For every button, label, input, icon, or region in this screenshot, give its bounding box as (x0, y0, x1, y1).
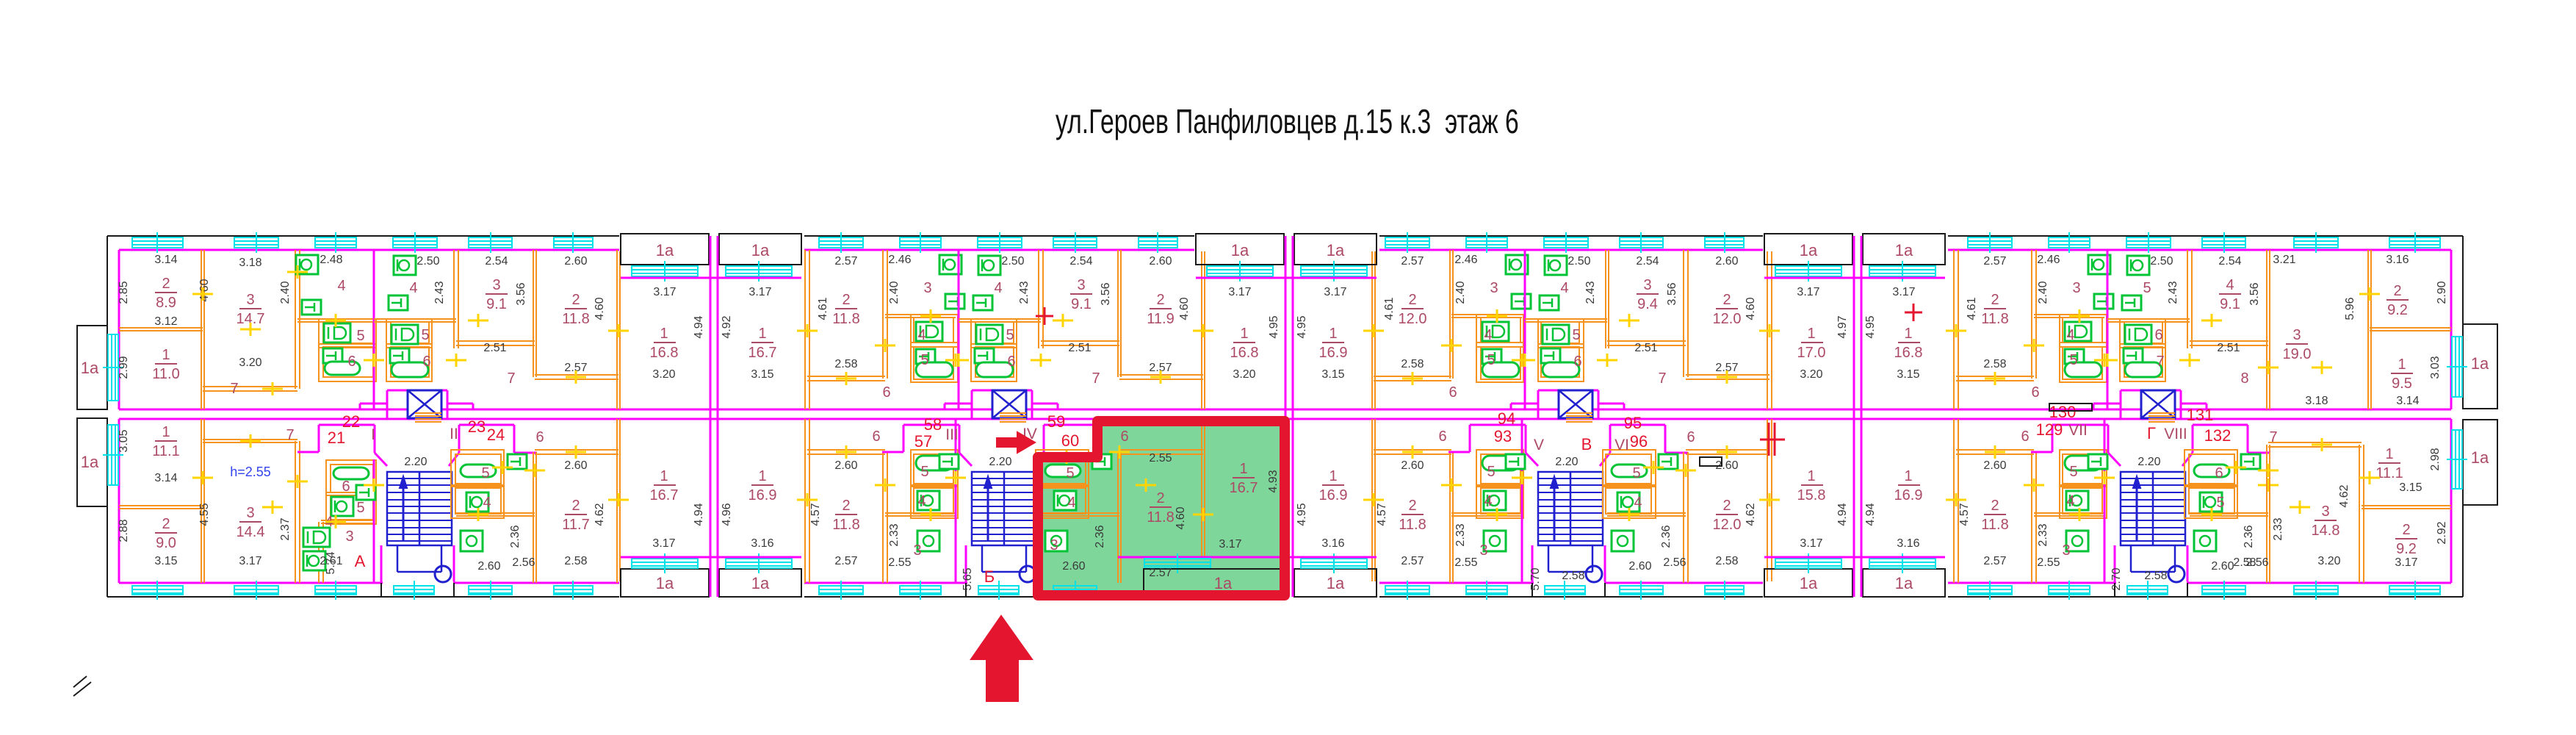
svg-text:11.8: 11.8 (832, 311, 859, 327)
svg-text:2.58: 2.58 (564, 555, 587, 567)
svg-text:2.58: 2.58 (1562, 570, 1584, 582)
svg-text:12.0: 12.0 (1399, 311, 1427, 327)
svg-text:11.9: 11.9 (1147, 311, 1174, 327)
svg-text:11.8: 11.8 (1981, 517, 2008, 533)
svg-text:3.15: 3.15 (751, 368, 773, 381)
svg-text:12.0: 12.0 (1713, 311, 1742, 327)
svg-text:6: 6 (1686, 429, 1695, 445)
svg-text:9.2: 9.2 (2387, 302, 2408, 318)
svg-text:131: 131 (2187, 406, 2214, 424)
svg-text:95: 95 (1624, 414, 1642, 432)
svg-text:2.54: 2.54 (1636, 255, 1659, 268)
svg-text:4.93: 4.93 (1267, 470, 1280, 492)
svg-text:2.57: 2.57 (834, 255, 857, 268)
svg-text:24: 24 (487, 426, 505, 444)
svg-text:5: 5 (1572, 327, 1580, 343)
svg-text:4: 4 (1560, 280, 1568, 296)
svg-text:9.1: 9.1 (486, 296, 507, 312)
svg-text:1a: 1a (1327, 574, 1345, 592)
svg-text:4: 4 (917, 327, 926, 343)
svg-text:3.17: 3.17 (2395, 556, 2417, 569)
svg-text:1: 1 (1240, 326, 1248, 342)
svg-text:2.85: 2.85 (118, 281, 130, 304)
svg-text:3.17: 3.17 (1324, 286, 1346, 298)
svg-text:7: 7 (2156, 354, 2164, 370)
svg-text:16.8: 16.8 (1230, 345, 1259, 361)
svg-text:2: 2 (1408, 292, 1416, 308)
svg-text:2.40: 2.40 (888, 281, 901, 304)
svg-text:4: 4 (1067, 495, 1075, 511)
svg-text:5.96: 5.96 (2344, 297, 2356, 320)
svg-text:2.33: 2.33 (2037, 523, 2049, 546)
svg-text:А: А (355, 552, 366, 570)
svg-text:57: 57 (914, 432, 932, 451)
svg-text:2: 2 (1722, 292, 1731, 308)
svg-text:h=2.55: h=2.55 (230, 465, 271, 479)
svg-text:3: 3 (1643, 277, 1651, 293)
svg-text:6: 6 (422, 354, 430, 370)
svg-text:2.43: 2.43 (1584, 281, 1597, 304)
svg-text:4.94: 4.94 (1836, 503, 1849, 526)
svg-text:2.51: 2.51 (1634, 342, 1657, 354)
svg-text:3: 3 (492, 277, 500, 293)
svg-text:16.7: 16.7 (748, 345, 777, 361)
svg-text:3.15: 3.15 (2399, 481, 2422, 494)
svg-text:3.15: 3.15 (154, 555, 177, 567)
svg-text:2: 2 (1156, 292, 1164, 308)
svg-text:2: 2 (2393, 283, 2401, 299)
svg-text:7: 7 (1658, 370, 1666, 387)
svg-text:4: 4 (2226, 277, 2234, 293)
svg-text:1: 1 (1904, 326, 1912, 342)
svg-text:2.98: 2.98 (2429, 448, 2442, 470)
svg-text:2.43: 2.43 (1018, 281, 1031, 304)
svg-text:6: 6 (2154, 327, 2162, 343)
svg-text:2.92: 2.92 (2436, 521, 2448, 544)
svg-text:9.5: 9.5 (2392, 376, 2412, 392)
svg-text:23: 23 (468, 417, 486, 436)
svg-text:2.20: 2.20 (404, 456, 427, 468)
svg-text:11.0: 11.0 (152, 366, 179, 382)
svg-text:1a: 1a (2471, 354, 2489, 373)
svg-text:2.36: 2.36 (509, 525, 522, 548)
svg-text:2.46: 2.46 (1454, 254, 1477, 266)
svg-text:11.8: 11.8 (562, 311, 589, 327)
svg-text:3: 3 (923, 280, 931, 296)
svg-text:3: 3 (2321, 503, 2329, 520)
svg-text:Б: Б (984, 567, 995, 586)
svg-text:2: 2 (842, 292, 850, 308)
svg-text:4.94: 4.94 (693, 503, 705, 526)
svg-text:9.2: 9.2 (2396, 541, 2417, 557)
svg-text:2.33: 2.33 (1454, 523, 1467, 546)
svg-text:5: 5 (920, 464, 928, 480)
svg-text:1: 1 (2385, 446, 2393, 462)
svg-text:2.60: 2.60 (2211, 560, 2234, 573)
svg-text:1a: 1a (1895, 574, 1913, 592)
svg-text:2.60: 2.60 (477, 560, 500, 573)
svg-text:2.33: 2.33 (2272, 517, 2284, 540)
svg-text:В: В (1581, 435, 1592, 453)
svg-text:11.8: 11.8 (832, 517, 859, 533)
svg-text:6: 6 (872, 429, 880, 445)
svg-text:2.57: 2.57 (1401, 255, 1424, 268)
svg-text:2.60: 2.60 (1628, 560, 1651, 573)
svg-text:4.57: 4.57 (1958, 503, 1971, 526)
svg-text:3.17: 3.17 (1797, 286, 1819, 298)
svg-text:3.14: 3.14 (2396, 395, 2419, 407)
svg-text:5: 5 (356, 500, 364, 516)
svg-text:12.0: 12.0 (1713, 517, 1742, 533)
svg-text:4: 4 (2066, 327, 2074, 343)
svg-text:2.40: 2.40 (2037, 281, 2049, 304)
svg-text:7: 7 (286, 427, 294, 443)
svg-text:6: 6 (347, 354, 356, 370)
svg-text:9.0: 9.0 (156, 535, 176, 551)
svg-text:2.51: 2.51 (1068, 342, 1091, 354)
svg-text:9.1: 9.1 (2220, 296, 2240, 312)
svg-text:3.20: 3.20 (2317, 555, 2340, 567)
svg-text:4: 4 (1634, 495, 1642, 511)
svg-text:1a: 1a (656, 241, 674, 259)
svg-text:4.57: 4.57 (809, 503, 822, 526)
svg-text:3.56: 3.56 (2248, 282, 2261, 305)
svg-text:2.58: 2.58 (1401, 358, 1424, 370)
svg-text:8: 8 (2240, 370, 2248, 387)
svg-text:2: 2 (571, 292, 580, 308)
svg-text:2.60: 2.60 (564, 459, 587, 472)
svg-text:5: 5 (1066, 465, 1074, 481)
svg-text:3: 3 (1479, 542, 1487, 559)
svg-text:15.8: 15.8 (1797, 487, 1826, 503)
svg-text:5: 5 (1632, 465, 1640, 481)
svg-text:2: 2 (1991, 498, 1999, 514)
svg-text:4.60: 4.60 (198, 279, 211, 301)
svg-text:3: 3 (1050, 537, 1058, 553)
svg-text:5: 5 (920, 352, 928, 368)
svg-text:8.9: 8.9 (156, 295, 176, 311)
svg-text:6: 6 (1438, 429, 1446, 445)
svg-text:2.57: 2.57 (1983, 555, 2006, 567)
svg-text:3.56: 3.56 (1100, 282, 1112, 305)
svg-text:7: 7 (2269, 429, 2277, 445)
svg-text:4.55: 4.55 (198, 503, 211, 526)
svg-text:5.65: 5.65 (962, 567, 974, 590)
svg-text:3.16: 3.16 (751, 537, 773, 550)
svg-text:11.1: 11.1 (152, 443, 179, 459)
svg-text:2: 2 (1722, 498, 1731, 514)
svg-text:2.60: 2.60 (1983, 459, 2006, 472)
svg-text:2.58: 2.58 (1715, 555, 1738, 567)
svg-text:4.97: 4.97 (1836, 315, 1849, 338)
svg-text:2.70: 2.70 (2110, 567, 2123, 590)
svg-text:21: 21 (328, 429, 345, 447)
svg-text:1a: 1a (1327, 241, 1345, 259)
svg-text:3.56: 3.56 (1666, 282, 1678, 305)
svg-text:5: 5 (2216, 495, 2224, 511)
svg-text:2.90: 2.90 (2436, 281, 2448, 304)
svg-text:6: 6 (1448, 384, 1457, 401)
svg-text:3.18: 3.18 (239, 257, 261, 269)
svg-text:4: 4 (483, 495, 491, 511)
svg-text:2.20: 2.20 (1555, 456, 1578, 468)
svg-text:2.54: 2.54 (485, 255, 508, 268)
svg-text:19.0: 19.0 (2283, 346, 2312, 362)
svg-text:2.46: 2.46 (888, 254, 911, 266)
svg-text:7: 7 (507, 370, 515, 387)
svg-text:4.61: 4.61 (817, 297, 829, 320)
svg-text:11.1: 11.1 (2375, 465, 2403, 481)
svg-text:3: 3 (2292, 327, 2301, 343)
svg-text:2: 2 (571, 498, 580, 514)
svg-text:16.7: 16.7 (650, 487, 679, 503)
svg-text:9.1: 9.1 (1071, 296, 1092, 312)
svg-text:3.17: 3.17 (1800, 537, 1822, 550)
svg-text:5: 5 (2069, 464, 2077, 480)
svg-text:4.94: 4.94 (693, 315, 705, 338)
svg-text:3: 3 (1077, 277, 1085, 293)
svg-text:2.43: 2.43 (433, 281, 446, 304)
svg-text:5: 5 (1006, 327, 1014, 343)
svg-text:1a: 1a (1231, 241, 1249, 259)
svg-text:132: 132 (2204, 426, 2232, 445)
svg-text:1: 1 (758, 468, 766, 484)
svg-text:VI: VI (1614, 437, 1629, 453)
svg-text:2.60: 2.60 (1149, 255, 1172, 268)
svg-text:6: 6 (1120, 429, 1128, 445)
svg-text:2.51: 2.51 (2217, 342, 2240, 354)
svg-text:3.21: 3.21 (2273, 254, 2295, 266)
svg-text:III: III (945, 426, 959, 443)
svg-text:96: 96 (1630, 432, 1648, 451)
svg-text:1a: 1a (1800, 574, 1818, 592)
svg-text:6: 6 (535, 429, 544, 445)
svg-text:11.8: 11.8 (1981, 311, 2008, 327)
svg-text:2.46: 2.46 (2037, 254, 2060, 266)
svg-text:2: 2 (162, 276, 170, 292)
svg-text:1a: 1a (1895, 241, 1913, 259)
svg-text:2.55: 2.55 (2037, 556, 2060, 569)
svg-text:II: II (450, 426, 458, 442)
svg-text:3.14: 3.14 (154, 254, 177, 266)
svg-text:6: 6 (1007, 354, 1015, 370)
svg-text:5: 5 (481, 465, 489, 481)
svg-text:1: 1 (162, 347, 170, 363)
svg-text:1a: 1a (2471, 448, 2489, 467)
svg-text:2.50: 2.50 (1001, 255, 1024, 268)
svg-text:4: 4 (337, 278, 345, 294)
svg-text:1: 1 (1329, 468, 1337, 484)
svg-text:16.8: 16.8 (650, 345, 679, 361)
svg-text:ул.Героев Панфиловцев д.15 к.3: ул.Героев Панфиловцев д.15 к.3 этаж 6 (1056, 103, 1519, 140)
svg-text:16.9: 16.9 (1319, 345, 1348, 361)
svg-text:2: 2 (1156, 490, 1164, 506)
svg-text:2.40: 2.40 (1454, 281, 1467, 304)
svg-text:4.92: 4.92 (721, 315, 733, 338)
svg-text:3.12: 3.12 (154, 315, 177, 328)
svg-text:6: 6 (342, 478, 350, 495)
svg-text:1a: 1a (656, 574, 674, 592)
svg-text:4.95: 4.95 (1296, 503, 1308, 526)
svg-text:4.95: 4.95 (1268, 315, 1280, 338)
svg-text:2.58: 2.58 (1983, 358, 2006, 370)
svg-text:4.60: 4.60 (1745, 297, 1757, 320)
svg-text:4: 4 (917, 493, 926, 509)
svg-text:2: 2 (842, 498, 850, 514)
svg-text:4.62: 4.62 (594, 503, 606, 526)
svg-text:60: 60 (1061, 431, 1079, 450)
svg-text:1a: 1a (751, 241, 770, 259)
svg-text:4.62: 4.62 (2338, 484, 2350, 507)
svg-text:4.60: 4.60 (1175, 506, 1187, 529)
svg-text:VII: VII (2068, 422, 2088, 439)
svg-text:2.36: 2.36 (1094, 525, 1106, 548)
svg-text:14.4: 14.4 (237, 524, 265, 540)
svg-text:2.60: 2.60 (834, 459, 857, 472)
svg-text:3.17: 3.17 (748, 286, 771, 298)
svg-text:7: 7 (230, 381, 238, 397)
svg-text:16.7: 16.7 (1230, 480, 1258, 496)
svg-text:2: 2 (1408, 498, 1416, 514)
svg-text:1: 1 (660, 468, 668, 484)
svg-text:Г: Г (2147, 424, 2156, 442)
svg-text:2.50: 2.50 (2150, 255, 2173, 268)
svg-text:4.94: 4.94 (1864, 503, 1877, 526)
svg-text:4: 4 (1484, 327, 1492, 343)
svg-text:3.14: 3.14 (154, 472, 177, 484)
svg-text:5: 5 (1487, 464, 1495, 480)
svg-text:4.95: 4.95 (1296, 315, 1308, 338)
svg-text:2.54: 2.54 (2218, 255, 2241, 268)
svg-text:3: 3 (246, 292, 254, 308)
svg-text:11.7: 11.7 (562, 517, 589, 533)
svg-text:1: 1 (1329, 326, 1337, 342)
svg-text:1a: 1a (81, 359, 99, 377)
svg-text:2.60: 2.60 (1062, 560, 1085, 573)
svg-text:2.57: 2.57 (1983, 255, 2006, 268)
svg-text:4.62: 4.62 (1745, 503, 1757, 526)
svg-text:3.17: 3.17 (239, 555, 261, 567)
svg-text:16.9: 16.9 (748, 487, 777, 503)
svg-text:2.57: 2.57 (1149, 567, 1172, 579)
svg-text:2: 2 (1991, 292, 1999, 308)
svg-text:VIII: VIII (2164, 426, 2187, 442)
svg-text:5.70: 5.70 (1529, 567, 1542, 590)
svg-text:59: 59 (1047, 412, 1065, 431)
svg-text:2.99: 2.99 (118, 356, 130, 379)
svg-text:2.50: 2.50 (416, 255, 439, 268)
svg-text:2.60: 2.60 (1715, 255, 1738, 268)
svg-text:2.55: 2.55 (1149, 452, 1172, 465)
svg-text:14.8: 14.8 (2312, 523, 2340, 539)
svg-text:4.95: 4.95 (1864, 315, 1877, 338)
svg-text:4: 4 (1484, 493, 1492, 509)
svg-text:2.20: 2.20 (2137, 456, 2160, 468)
svg-text:2.36: 2.36 (1660, 525, 1673, 548)
svg-text:2.55: 2.55 (1454, 556, 1477, 569)
svg-text:2.56: 2.56 (2245, 556, 2268, 569)
svg-text:1: 1 (1239, 461, 1247, 477)
svg-text:3.17: 3.17 (653, 286, 676, 298)
svg-text:3.17: 3.17 (1228, 286, 1251, 298)
svg-text:1: 1 (1807, 326, 1815, 342)
svg-text:5.74: 5.74 (325, 551, 337, 574)
svg-text:5: 5 (2143, 280, 2151, 296)
svg-text:58: 58 (924, 415, 942, 434)
svg-text:129: 129 (2036, 420, 2063, 439)
svg-text:5: 5 (356, 328, 364, 344)
svg-text:2.56: 2.56 (1663, 556, 1686, 569)
svg-text:3.56: 3.56 (515, 282, 527, 305)
svg-text:2.36: 2.36 (2243, 525, 2255, 548)
svg-text:1: 1 (1904, 468, 1912, 484)
svg-text:93: 93 (1494, 427, 1512, 445)
svg-text:3.20: 3.20 (239, 356, 261, 369)
svg-text:3: 3 (1490, 280, 1498, 296)
svg-text:1a: 1a (81, 453, 99, 471)
svg-text:2.51: 2.51 (483, 342, 506, 354)
svg-text:6: 6 (2021, 429, 2029, 445)
svg-text:16.8: 16.8 (1894, 345, 1923, 361)
svg-text:6: 6 (882, 384, 890, 401)
svg-text:4.96: 4.96 (721, 503, 733, 526)
svg-text:1: 1 (660, 326, 668, 342)
svg-text:1: 1 (162, 424, 170, 440)
svg-text:3.16: 3.16 (1321, 537, 1344, 550)
svg-text:3.16: 3.16 (1897, 537, 1919, 550)
svg-text:7: 7 (1092, 370, 1100, 387)
svg-text:6: 6 (2215, 465, 2223, 481)
svg-text:3.15: 3.15 (1321, 368, 1344, 381)
svg-text:6: 6 (2031, 384, 2039, 401)
svg-text:2.57: 2.57 (1401, 555, 1424, 567)
svg-text:4.61: 4.61 (1383, 297, 1396, 320)
svg-text:2.37: 2.37 (279, 517, 292, 540)
svg-text:2.55: 2.55 (888, 556, 911, 569)
svg-text:3.20: 3.20 (1800, 368, 1822, 381)
svg-text:V: V (1534, 437, 1544, 453)
svg-text:3.16: 3.16 (2386, 254, 2409, 266)
svg-text:3: 3 (2072, 280, 2080, 296)
svg-text:1: 1 (2398, 356, 2406, 373)
svg-text:3: 3 (345, 528, 353, 545)
svg-text:2.54: 2.54 (1069, 255, 1092, 268)
svg-text:4.57: 4.57 (1376, 503, 1388, 526)
svg-text:1a: 1a (1800, 241, 1818, 259)
svg-text:5: 5 (2069, 352, 2077, 368)
svg-text:2.48: 2.48 (320, 254, 342, 266)
svg-text:17.0: 17.0 (1797, 345, 1826, 361)
svg-text:5: 5 (1487, 352, 1495, 368)
svg-text:2.88: 2.88 (118, 519, 130, 542)
svg-text:3: 3 (2062, 542, 2070, 559)
svg-text:1a: 1a (751, 574, 770, 592)
svg-text:3.18: 3.18 (2305, 395, 2328, 407)
svg-text:2.60: 2.60 (564, 255, 587, 268)
svg-text:3.17: 3.17 (652, 537, 675, 550)
svg-text:3: 3 (913, 542, 921, 559)
svg-text:4: 4 (994, 280, 1002, 296)
svg-text:4: 4 (409, 280, 417, 296)
svg-text:2.56: 2.56 (512, 556, 535, 569)
svg-text:16.9: 16.9 (1319, 487, 1348, 503)
svg-text:3.15: 3.15 (1897, 368, 1919, 381)
svg-text:9.4: 9.4 (1637, 296, 1658, 312)
svg-text:6: 6 (1573, 354, 1581, 370)
svg-text:4.60: 4.60 (594, 297, 606, 320)
svg-text:2.58: 2.58 (834, 358, 857, 370)
svg-text:I: I (371, 426, 375, 443)
